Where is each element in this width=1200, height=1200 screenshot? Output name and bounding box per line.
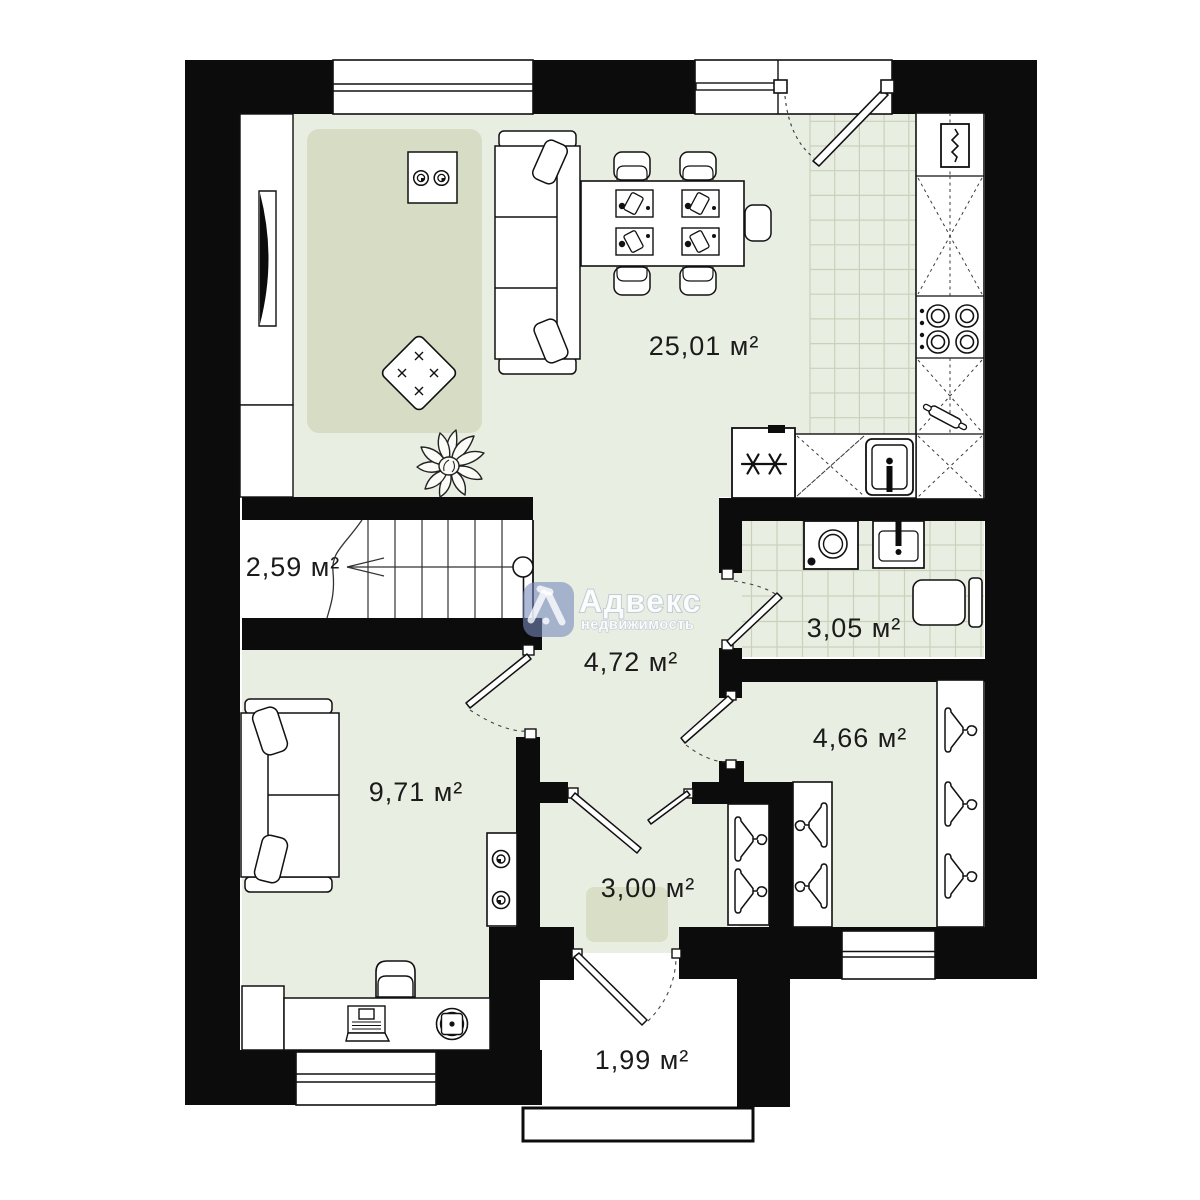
svg-text:4,66 м²: 4,66 м² (813, 723, 908, 753)
svg-text:Адвекс: Адвекс (579, 583, 702, 619)
svg-text:недвижимость: недвижимость (581, 617, 695, 633)
svg-text:3,00 м²: 3,00 м² (601, 873, 696, 903)
svg-text:2,59 м²: 2,59 м² (246, 552, 341, 582)
svg-text:25,01 м²: 25,01 м² (649, 331, 760, 361)
svg-text:3,05 м²: 3,05 м² (807, 613, 902, 643)
svg-text:4,72 м²: 4,72 м² (584, 647, 679, 677)
svg-text:9,71 м²: 9,71 м² (369, 777, 464, 807)
svg-text:1,99 м²: 1,99 м² (595, 1045, 690, 1075)
